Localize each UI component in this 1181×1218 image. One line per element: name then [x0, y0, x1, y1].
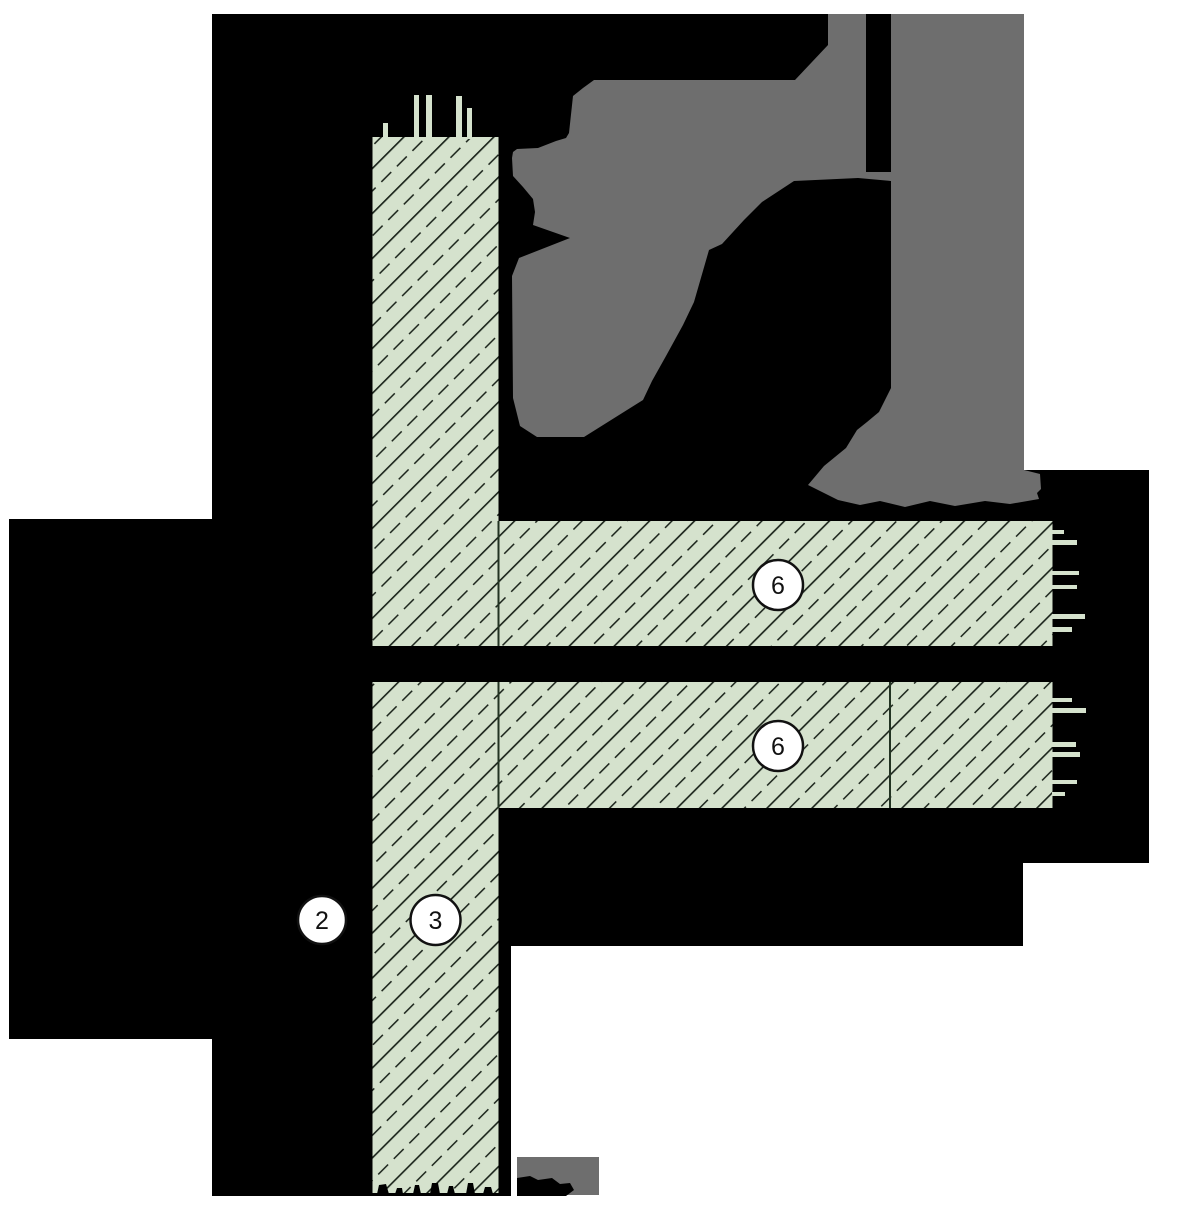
svg-text:2: 2 [315, 907, 329, 935]
svg-text:6: 6 [771, 733, 785, 761]
svg-text:3: 3 [429, 907, 443, 935]
svg-text:6: 6 [771, 572, 785, 600]
